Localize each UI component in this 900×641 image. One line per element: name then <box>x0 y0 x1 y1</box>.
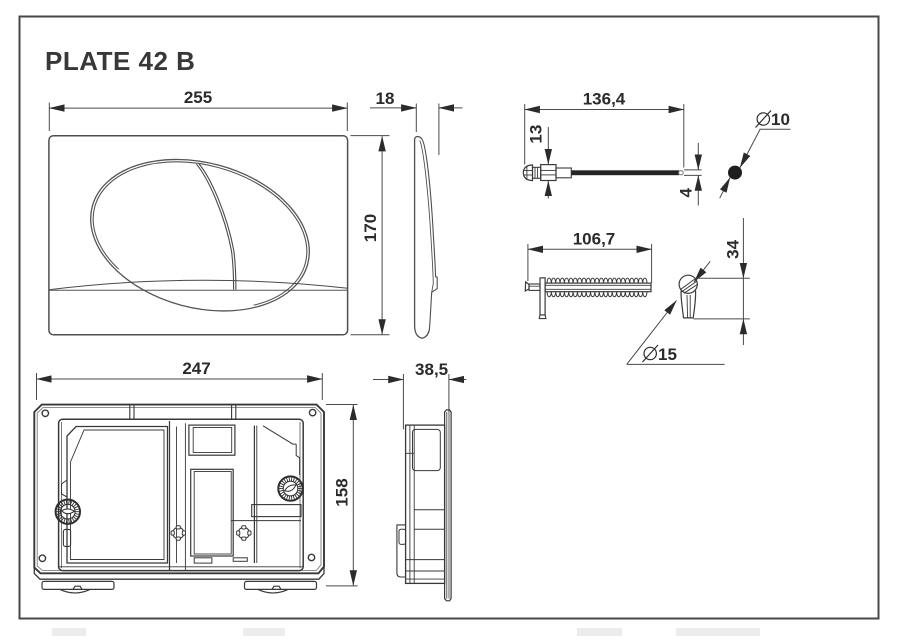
svg-text:4: 4 <box>677 188 696 198</box>
svg-text:13: 13 <box>526 125 545 144</box>
svg-text:247: 247 <box>182 359 210 378</box>
svg-text:255: 255 <box>184 88 212 107</box>
svg-text:158: 158 <box>333 478 352 506</box>
svg-text:136,4: 136,4 <box>583 90 626 109</box>
svg-text:170: 170 <box>361 214 380 242</box>
svg-text:106,7: 106,7 <box>573 230 616 249</box>
svg-text:18: 18 <box>376 89 395 108</box>
svg-text:38,5: 38,5 <box>415 360 448 379</box>
svg-text:15: 15 <box>658 345 677 364</box>
svg-text:PLATE 42 B: PLATE 42 B <box>45 46 195 76</box>
svg-text:10: 10 <box>771 110 790 129</box>
svg-text:34: 34 <box>724 239 743 258</box>
